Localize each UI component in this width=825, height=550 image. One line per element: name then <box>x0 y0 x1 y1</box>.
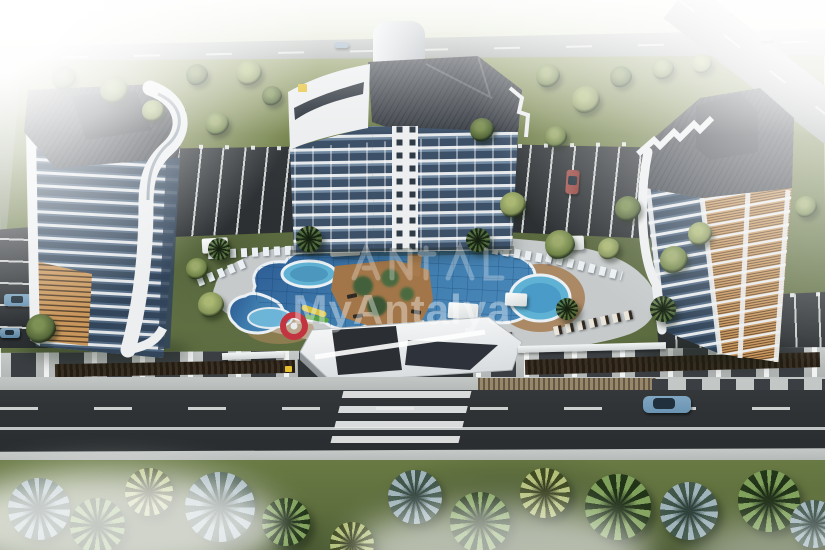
watermark-logo-icon <box>340 240 510 284</box>
aerial-complex-render: MyAntalya <box>0 0 825 550</box>
watermark-text: MyAntalya <box>252 286 552 334</box>
